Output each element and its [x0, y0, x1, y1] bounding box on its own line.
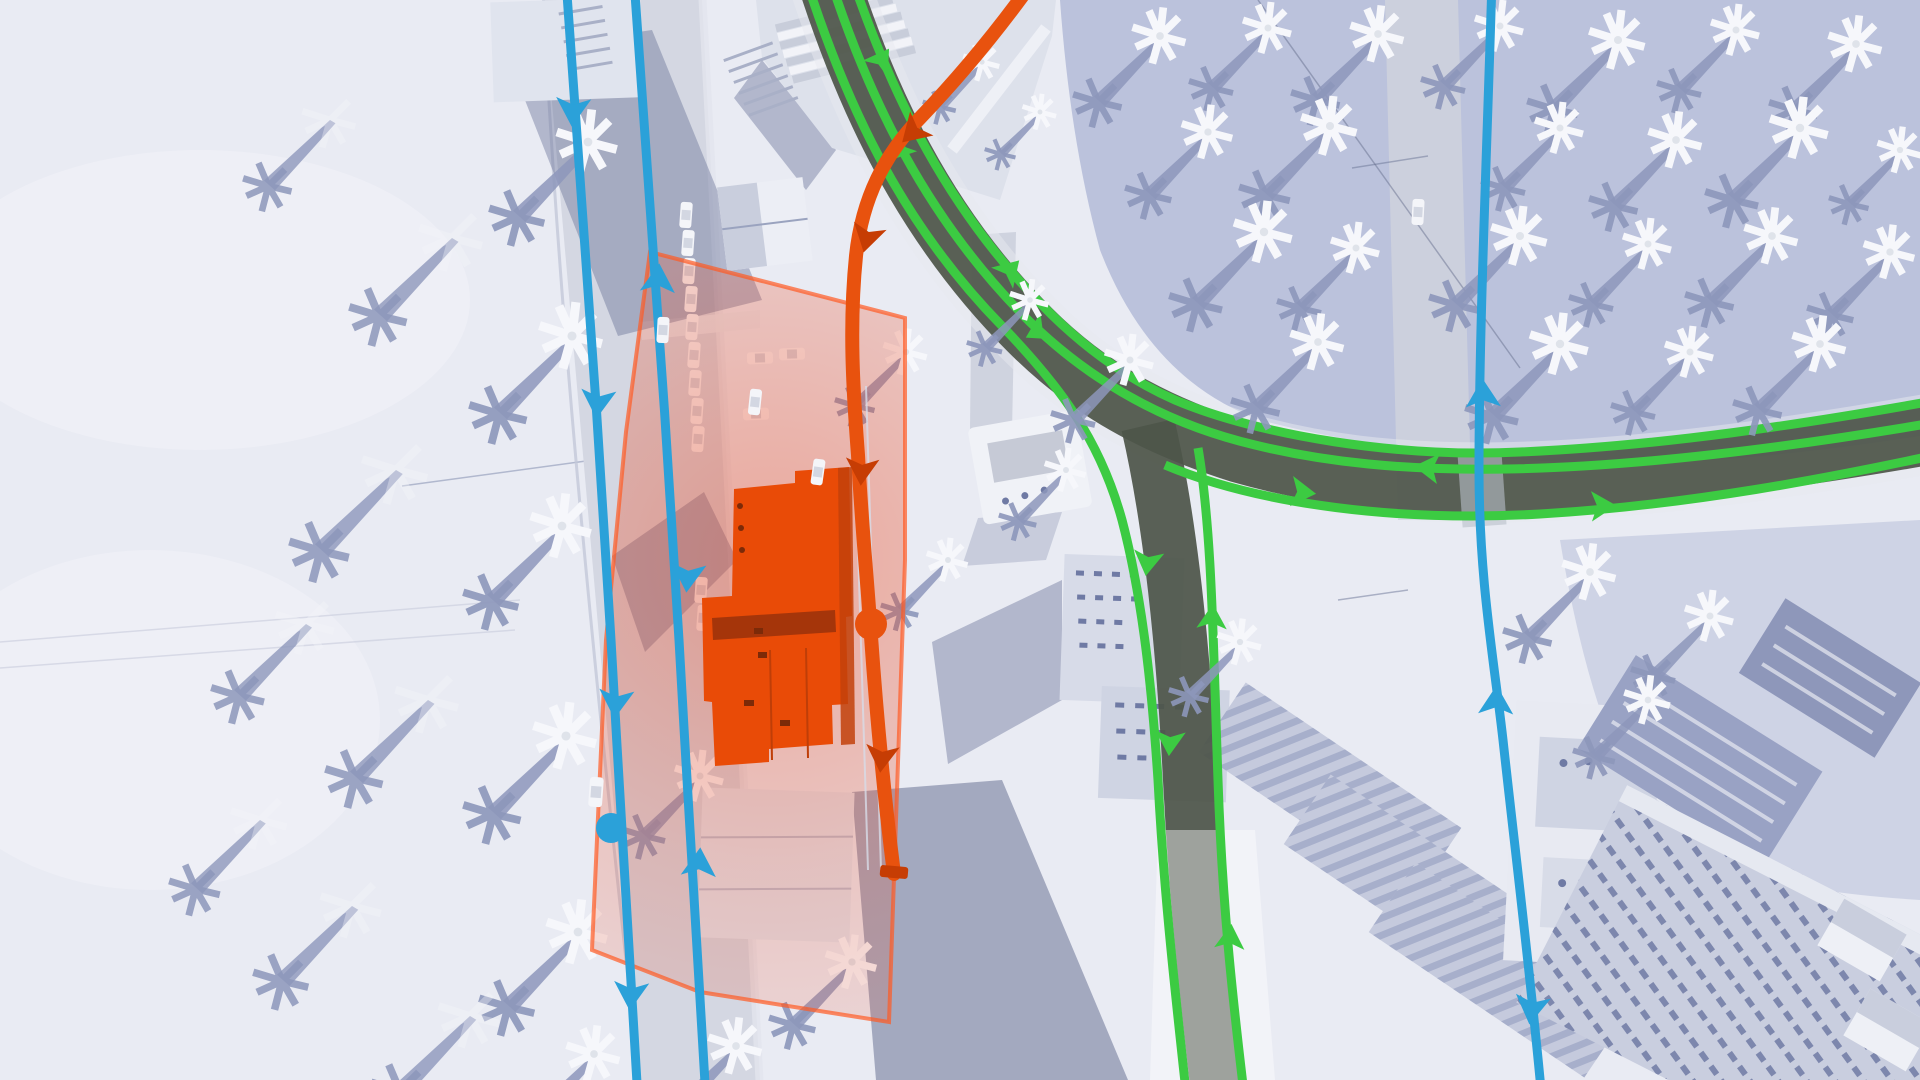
- car: [1411, 199, 1424, 226]
- blue-route-stop-dot[interactable]: [596, 813, 626, 843]
- car: [656, 317, 669, 344]
- selected-building-shade: [838, 467, 855, 745]
- game-viewport[interactable]: [0, 0, 1920, 1080]
- car: [681, 230, 695, 257]
- bus-vehicle: [588, 777, 604, 808]
- building[interactable]: [717, 177, 813, 271]
- map-canvas[interactable]: [0, 0, 1920, 1080]
- orange-route-terminus: [880, 865, 909, 879]
- orange-route-stop-dot[interactable]: [855, 608, 887, 640]
- car: [679, 202, 693, 229]
